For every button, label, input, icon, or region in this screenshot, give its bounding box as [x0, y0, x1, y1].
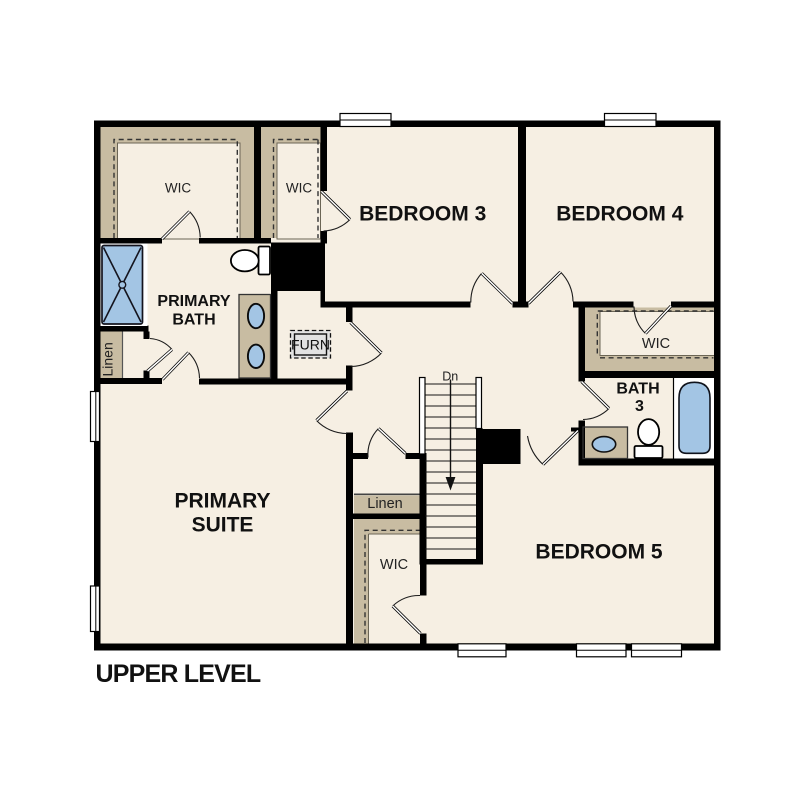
- svg-text:WIC: WIC: [286, 181, 312, 196]
- svg-text:UPPER LEVEL: UPPER LEVEL: [96, 660, 261, 688]
- svg-text:BEDROOM 4: BEDROOM 4: [556, 203, 684, 226]
- svg-text:WIC: WIC: [642, 336, 670, 352]
- svg-text:SUITE: SUITE: [192, 514, 254, 537]
- svg-text:PRIMARY: PRIMARY: [174, 490, 270, 513]
- svg-text:BEDROOM 3: BEDROOM 3: [359, 203, 486, 226]
- svg-text:PRIMARY: PRIMARY: [157, 293, 231, 310]
- svg-text:Linen: Linen: [100, 342, 116, 376]
- svg-text:Linen: Linen: [367, 496, 402, 512]
- svg-text:BATH: BATH: [172, 312, 215, 329]
- svg-text:Dn: Dn: [442, 370, 458, 384]
- svg-text:WIC: WIC: [165, 181, 191, 196]
- svg-text:3: 3: [635, 398, 644, 415]
- svg-text:WIC: WIC: [380, 557, 408, 573]
- svg-text:BEDROOM 5: BEDROOM 5: [535, 541, 663, 564]
- svg-text:FURN: FURN: [291, 337, 330, 353]
- svg-text:BATH: BATH: [616, 381, 659, 398]
